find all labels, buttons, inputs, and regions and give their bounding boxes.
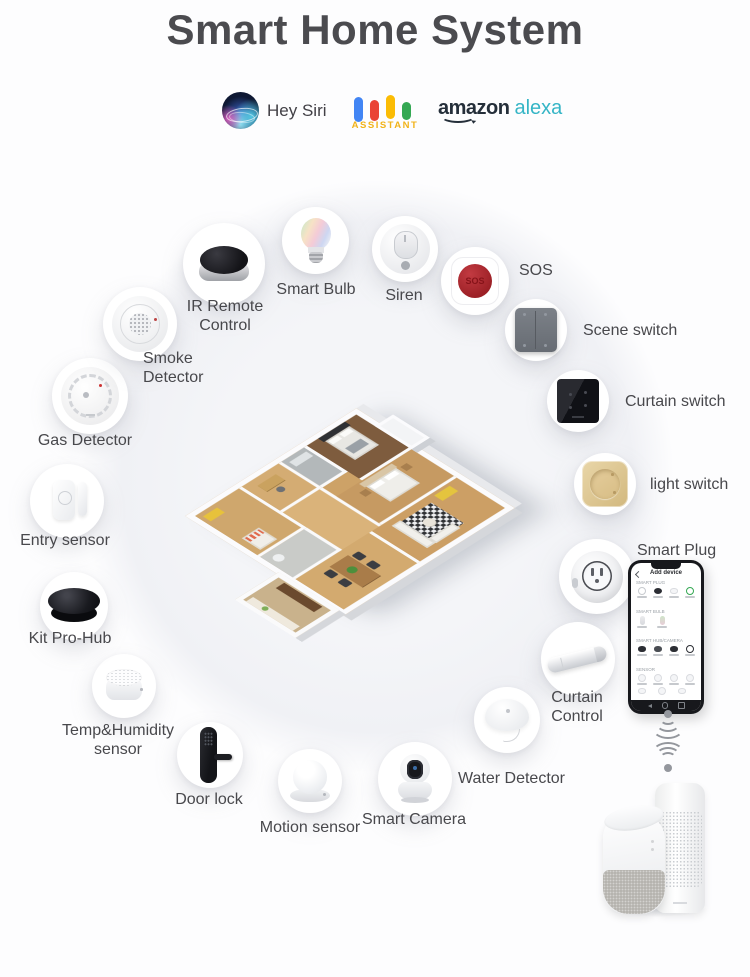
label-smoke-detector: SmokeDetector [143, 349, 203, 387]
detector-mesh [129, 313, 151, 335]
bulb-globe [301, 218, 331, 250]
curtain-motor-bar [546, 645, 608, 674]
caption-bar [685, 596, 695, 598]
detector-dot [83, 392, 89, 398]
device-smart-bulb [282, 207, 349, 274]
label-entry-sensor: Entry sensor [0, 531, 130, 550]
app-device-item [636, 674, 648, 685]
camera-icon [686, 645, 694, 653]
sensor-dome [293, 760, 327, 794]
caption-bar [669, 596, 679, 598]
app-section-hub-camera: SMART HUB/CAMERA [636, 638, 696, 658]
temp-humidity-icon [101, 668, 147, 704]
label-gas-detector: Gas Detector [5, 431, 165, 450]
ir-remote-icon [198, 245, 250, 283]
sensor-icon [638, 688, 646, 694]
switch-dot [569, 406, 572, 409]
sink [270, 552, 287, 563]
sensor-top [106, 669, 142, 686]
study-chair [274, 485, 287, 493]
caption-bar [637, 626, 647, 628]
phone-screen: Add device SMART PLUG SMART BULB SMA [631, 563, 701, 711]
bulb-screw-base [309, 252, 323, 263]
dial-ring [590, 469, 620, 499]
caption-bar [653, 654, 663, 656]
app-device-item [636, 587, 648, 598]
nightstand [359, 489, 372, 497]
app-device-item [668, 645, 680, 656]
app-header-title: Add device [631, 570, 701, 576]
app-device-item [684, 587, 696, 598]
google-bar-red [370, 100, 379, 121]
app-section-smart-plug: SMART PLUG [636, 580, 696, 600]
nav-home-icon [662, 702, 669, 709]
detector-led [154, 318, 157, 321]
kids-desk [203, 508, 225, 522]
label-kit-pro-hub: Kit Pro-Hub [0, 629, 140, 648]
phone-notch [651, 563, 681, 569]
detector-vent-ring [68, 374, 112, 418]
device-smart-plug [559, 539, 634, 614]
bulb-icon [640, 616, 645, 625]
app-device-item [636, 616, 648, 628]
device-temp-humidity-sensor [92, 654, 156, 718]
siren-icon [380, 224, 430, 274]
switch-brand-mark [572, 416, 584, 418]
detector-hole [506, 709, 510, 713]
hub-top [48, 588, 100, 614]
entry-sensor-icon [42, 478, 92, 524]
plug-icon [686, 587, 694, 595]
label-scene-switch: Scene switch [583, 321, 677, 340]
switch-dot [569, 393, 572, 396]
device-icon-row [636, 645, 696, 656]
home-fabric-base [603, 870, 665, 914]
section-title: SMART BULB [636, 609, 696, 614]
wifi-arc [660, 752, 676, 764]
google-bar-blue [354, 97, 363, 122]
app-device-item [656, 687, 668, 695]
section-title: SENSOR [636, 667, 696, 672]
device-icon-row [636, 587, 696, 598]
alexa-wordmark: alexa [514, 97, 562, 120]
sensor-ring [58, 491, 72, 505]
amazon-alexa-logo: amazon alexa [438, 97, 562, 120]
caption-bar [637, 683, 647, 685]
label-siren: Siren [354, 286, 454, 305]
hub-icon [638, 646, 646, 652]
google-home-speaker [603, 806, 665, 914]
siren-dot [401, 261, 410, 270]
device-light-switch [574, 453, 636, 515]
hub-icon [670, 646, 678, 652]
plug-slot [591, 568, 594, 576]
plug-slot [600, 568, 603, 576]
gas-detector-icon [61, 367, 119, 425]
label-motion-sensor: Motion sensor [230, 818, 390, 837]
caption-bar [669, 683, 679, 685]
app-device-item [652, 587, 664, 598]
label-curtain-switch: Curtain switch [625, 392, 725, 411]
smartphone: Add device SMART PLUG SMART BULB SMA [628, 560, 704, 714]
echo-label [673, 902, 687, 904]
app-device-item [636, 687, 648, 695]
sensor-dot [140, 688, 143, 691]
device-icon-row [636, 674, 696, 685]
wifi-signal-icon [648, 710, 688, 742]
sensor-icon [670, 674, 678, 682]
sensor-dot [323, 793, 326, 796]
sensor-icon [678, 688, 686, 694]
sos-icon: SOS [451, 257, 499, 305]
kitchen-counter [246, 597, 300, 631]
floor-plan-illustration [155, 350, 545, 674]
device-sos: SOS [441, 247, 509, 315]
dial-dot [613, 491, 616, 494]
caption-bar [685, 654, 695, 656]
siren-button [394, 231, 418, 259]
app-device-item [676, 687, 688, 695]
caption-bar [653, 596, 663, 598]
app-section-sensor: SENSOR [636, 667, 696, 697]
plug-icon [670, 588, 678, 594]
sensor-icon [686, 674, 694, 682]
home-dot [651, 848, 654, 851]
device-smart-camera [378, 742, 452, 816]
switch-dot [584, 404, 587, 407]
water-detector-icon [483, 696, 531, 744]
device-water-detector [474, 687, 540, 753]
caption-bar [637, 654, 647, 656]
device-entry-sensor [30, 464, 104, 538]
google-assistant-icon [354, 90, 420, 122]
section-title: SMART HUB/CAMERA [636, 638, 696, 643]
label-door-lock: Door lock [139, 790, 279, 809]
siren-button-line [404, 235, 406, 242]
detector-led [99, 384, 102, 387]
curtain-control-icon [546, 637, 610, 681]
sensor-icon [658, 687, 666, 695]
amazon-wordmark: amazon [438, 97, 509, 120]
caption-bar [657, 626, 667, 628]
hub-icon [654, 646, 662, 652]
device-icon-row [636, 616, 696, 628]
device-curtain-switch [547, 370, 609, 432]
nav-recents-icon [678, 702, 685, 709]
detector-cable [503, 729, 520, 742]
device-curtain-control [541, 622, 615, 696]
siri-icon [222, 92, 259, 129]
caption-bar [669, 654, 679, 656]
label-sos: SOS [519, 261, 553, 280]
switch-dot [523, 313, 526, 316]
switch-dot [544, 313, 547, 316]
smart-home-system-poster: Smart Home System Hey Siri ASSISTANT ama… [0, 0, 750, 977]
device-siren [372, 216, 438, 282]
remote-top [200, 246, 248, 274]
app-device-item [668, 587, 680, 598]
motor-end-cap [594, 645, 608, 662]
smart-camera-icon [393, 753, 437, 805]
dial-dot [611, 473, 614, 476]
lock-handle [214, 754, 232, 760]
wifi-signal-icon [648, 742, 688, 774]
wifi-dot [664, 764, 672, 772]
app-device-item [656, 616, 668, 628]
bathtub [289, 451, 313, 466]
smoke-detector-icon [112, 296, 168, 352]
camera-lens-glass [413, 766, 417, 770]
nightstand [400, 463, 413, 471]
nav-back-icon [648, 704, 652, 708]
home-dot [651, 840, 654, 843]
device-motion-sensor [278, 749, 342, 813]
section-title: SMART PLUG [636, 580, 696, 585]
motion-sensor-icon [288, 759, 332, 803]
switch-dot [544, 344, 547, 347]
plug-icon [654, 588, 662, 594]
app-device-item [652, 645, 664, 656]
plug-face [582, 561, 612, 591]
sos-button: SOS [458, 264, 492, 298]
device-scene-switch [505, 299, 567, 361]
google-bar-green [402, 102, 411, 120]
switch-dot [584, 391, 587, 394]
device-icon-row [636, 687, 696, 695]
detector-body [485, 699, 529, 731]
switch-dot [523, 344, 526, 347]
label-smart-plug: Smart Plug [637, 541, 716, 560]
caption-bar [637, 596, 647, 598]
label-water-detector: Water Detector [458, 769, 565, 788]
light-switch-icon [582, 461, 628, 507]
switch-divider [535, 311, 536, 349]
app-section-smart-bulb: SMART BULB [636, 609, 696, 630]
caption-bar [685, 683, 695, 685]
app-device-item [684, 674, 696, 685]
smart-bulb-icon [299, 218, 333, 264]
app-device-item [652, 674, 664, 685]
label-temp-humidity-sensor: Temp&Humiditysensor [28, 721, 208, 759]
camera-base [401, 797, 429, 803]
smart-plug-icon [571, 551, 623, 603]
device-gas-detector [52, 358, 128, 434]
detector-slot [86, 414, 95, 416]
label-light-switch: light switch [650, 475, 728, 494]
plug-icon [638, 587, 646, 595]
sensor-magnet-bar [78, 482, 87, 516]
kit-pro-hub-icon [47, 588, 101, 624]
curtain-switch-icon [557, 379, 599, 423]
hey-siri-label: Hey Siri [267, 101, 327, 121]
plug-side-button [572, 578, 578, 588]
wifi-arc [652, 717, 684, 739]
app-device-item [636, 645, 648, 656]
bulb-icon [660, 616, 665, 625]
apartment-floor-plan [185, 408, 515, 615]
page-title: Smart Home System [0, 6, 750, 54]
google-assistant-label: ASSISTANT [348, 120, 422, 131]
plug-ground-hole [595, 579, 599, 583]
app-device-item [668, 674, 680, 685]
amazon-smile-icon [441, 110, 475, 123]
sensor-icon [638, 674, 646, 682]
scene-switch-icon [515, 308, 557, 352]
sensor-icon [654, 674, 662, 682]
app-device-item [684, 645, 696, 656]
motor-seam [560, 658, 564, 669]
google-bar-yellow [386, 95, 395, 119]
caption-bar [653, 683, 663, 685]
